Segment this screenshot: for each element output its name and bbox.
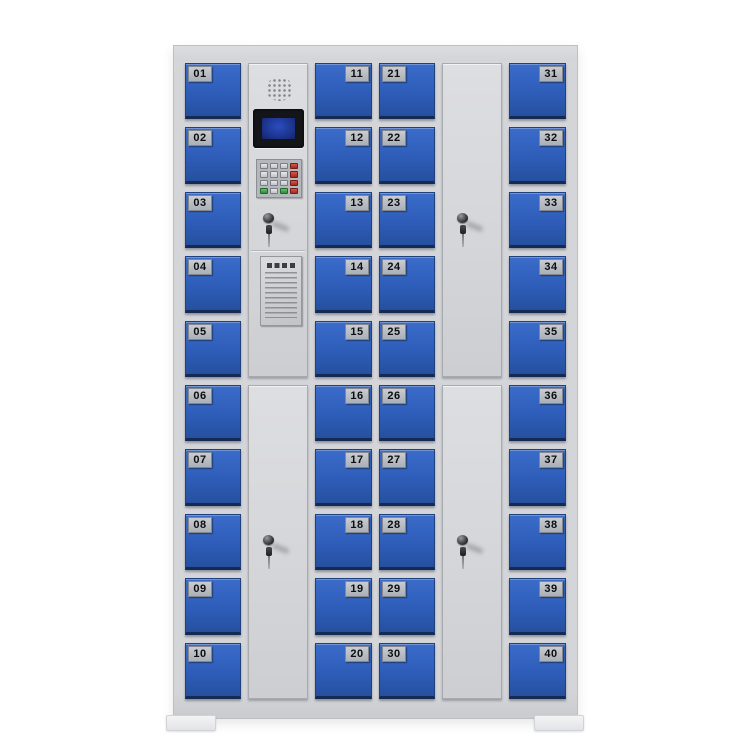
- key-shaft: [268, 556, 271, 569]
- locker-door-30: 30: [379, 643, 435, 699]
- locker-door-07: 07: [185, 449, 241, 505]
- keypad-key: [280, 180, 288, 186]
- locker-number-plate: 18: [345, 517, 369, 533]
- photo-background: 01 02 03 04 05 06 07 08 09 10: [0, 0, 750, 750]
- keypad-key-red: [290, 163, 298, 169]
- lock-knob: [457, 535, 468, 545]
- locker-door-03: 03: [185, 192, 241, 248]
- locker-door-13: 13: [315, 192, 372, 248]
- locker-door-02: 02: [185, 127, 241, 183]
- locker-column-1: 01 02 03 04 05 06 07 08 09 10: [185, 63, 241, 699]
- locker-number-plate: 28: [382, 517, 406, 533]
- locker-number-plate: 17: [345, 452, 369, 468]
- locker-door-14: 14: [315, 256, 372, 312]
- key-head: [460, 547, 466, 556]
- key-lock: [259, 535, 287, 575]
- locker-number-plate: 06: [188, 388, 212, 404]
- locker-door-27: 27: [379, 449, 435, 505]
- locker-number-plate: 02: [188, 130, 212, 146]
- locker-door-34: 34: [509, 256, 566, 312]
- key-head: [460, 225, 466, 234]
- locker-door-12: 12: [315, 127, 372, 183]
- locker-number-plate: 30: [382, 646, 406, 662]
- keypad-key: [260, 171, 268, 177]
- locker-number-plate: 20: [345, 646, 369, 662]
- locker-door-05: 05: [185, 321, 241, 377]
- keypad-key-green: [260, 188, 268, 194]
- locker-number-plate: 14: [345, 259, 369, 275]
- speaker-grille: [266, 77, 293, 101]
- keypad-key-red: [290, 171, 298, 177]
- keypad-key: [280, 171, 288, 177]
- keypad-key: [270, 180, 278, 186]
- keypad-key-red: [290, 180, 298, 186]
- locker-number-plate: 13: [345, 195, 369, 211]
- key-lock: [259, 213, 287, 253]
- locker-door-04: 04: [185, 256, 241, 312]
- locker-door-35: 35: [509, 321, 566, 377]
- locker-door-16: 16: [315, 385, 372, 441]
- instruction-plate: [260, 256, 302, 326]
- lcd-screen: [261, 117, 296, 140]
- key-head: [266, 547, 272, 556]
- locker-door-19: 19: [315, 578, 372, 634]
- locker-number-plate: 39: [539, 581, 563, 597]
- locker-column-4: 21 22 23 24 25 26 27 28 29 30: [379, 63, 435, 699]
- locker-number-plate: 07: [188, 452, 212, 468]
- locker-door-26: 26: [379, 385, 435, 441]
- lock-knob: [263, 213, 274, 223]
- instruction-text-greeked: [265, 272, 297, 318]
- locker-number-plate: 32: [539, 130, 563, 146]
- locker-door-08: 08: [185, 514, 241, 570]
- locker-door-22: 22: [379, 127, 435, 183]
- locker-door-21: 21: [379, 63, 435, 119]
- locker-number-plate: 40: [539, 646, 563, 662]
- locker-door-01: 01: [185, 63, 241, 119]
- locker-door-33: 33: [509, 192, 566, 248]
- locker-door-36: 36: [509, 385, 566, 441]
- keypad-key: [270, 171, 278, 177]
- keypad-key: [260, 180, 268, 186]
- locker-number-plate: 37: [539, 452, 563, 468]
- locker-door-40: 40: [509, 643, 566, 699]
- keypad-key-red: [290, 188, 298, 194]
- locker-number-plate: 22: [382, 130, 406, 146]
- locker-door-15: 15: [315, 321, 372, 377]
- locker-door-25: 25: [379, 321, 435, 377]
- locker-number-plate: 21: [382, 66, 406, 82]
- locker-door-31: 31: [509, 63, 566, 119]
- key-shaft: [462, 556, 465, 569]
- blank-door-top: [442, 63, 502, 377]
- lcd-display: [253, 109, 304, 148]
- key-head: [266, 225, 272, 234]
- key-lock: [453, 213, 481, 253]
- locker-number-plate: 34: [539, 259, 563, 275]
- locker-number-plate: 25: [382, 324, 406, 340]
- keypad-key-green: [280, 188, 288, 194]
- locker-door-38: 38: [509, 514, 566, 570]
- locker-number-plate: 36: [539, 388, 563, 404]
- locker-door-37: 37: [509, 449, 566, 505]
- locker-number-plate: 03: [188, 195, 212, 211]
- locker-door-06: 06: [185, 385, 241, 441]
- instruction-title-greeked: [267, 263, 295, 268]
- keypad: [256, 159, 302, 198]
- panel-seam: [251, 250, 305, 251]
- locker-column-6: 31 32 33 34 35 36 37 38 39 40: [509, 63, 566, 699]
- locker-number-plate: 26: [382, 388, 406, 404]
- locker-number-plate: 12: [345, 130, 369, 146]
- keypad-key: [270, 188, 278, 194]
- locker-number-plate: 16: [345, 388, 369, 404]
- locker-door-29: 29: [379, 578, 435, 634]
- locker-number-plate: 19: [345, 581, 369, 597]
- key-lock: [453, 535, 481, 575]
- locker-door-11: 11: [315, 63, 372, 119]
- key-shaft: [462, 234, 465, 247]
- keypad-key: [280, 163, 288, 169]
- locker-door-18: 18: [315, 514, 372, 570]
- lock-knob: [457, 213, 468, 223]
- keypad-key: [260, 163, 268, 169]
- locker-number-plate: 29: [382, 581, 406, 597]
- blank-door-bottom: [442, 385, 502, 699]
- locker-door-32: 32: [509, 127, 566, 183]
- locker-number-plate: 10: [188, 646, 212, 662]
- blank-door-control-bottom: [248, 385, 308, 699]
- locker-number-plate: 23: [382, 195, 406, 211]
- keypad-key: [270, 163, 278, 169]
- cabinet-door-area: 01 02 03 04 05 06 07 08 09 10: [185, 63, 566, 699]
- service-door-column: [442, 63, 502, 699]
- locker-door-20: 20: [315, 643, 372, 699]
- key-shaft: [268, 234, 271, 247]
- locker-door-09: 09: [185, 578, 241, 634]
- locker-column-3: 11 12 13 14 15 16 17 18 19 20: [315, 63, 372, 699]
- locker-door-39: 39: [509, 578, 566, 634]
- lock-knob: [263, 535, 274, 545]
- locker-number-plate: 27: [382, 452, 406, 468]
- locker-number-plate: 35: [539, 324, 563, 340]
- locker-number-plate: 33: [539, 195, 563, 211]
- locker-number-plate: 31: [539, 66, 563, 82]
- locker-number-plate: 05: [188, 324, 212, 340]
- locker-door-10: 10: [185, 643, 241, 699]
- locker-number-plate: 09: [188, 581, 212, 597]
- locker-cabinet: 01 02 03 04 05 06 07 08 09 10: [173, 45, 578, 719]
- locker-number-plate: 24: [382, 259, 406, 275]
- locker-number-plate: 08: [188, 517, 212, 533]
- locker-number-plate: 38: [539, 517, 563, 533]
- control-column: [248, 63, 308, 699]
- locker-door-17: 17: [315, 449, 372, 505]
- control-panel: [248, 63, 308, 377]
- cabinet-foot-left: [166, 715, 216, 731]
- locker-number-plate: 15: [345, 324, 369, 340]
- locker-door-28: 28: [379, 514, 435, 570]
- locker-door-23: 23: [379, 192, 435, 248]
- cabinet-foot-right: [534, 715, 584, 731]
- locker-door-24: 24: [379, 256, 435, 312]
- locker-number-plate: 04: [188, 259, 212, 275]
- locker-number-plate: 01: [188, 66, 212, 82]
- locker-number-plate: 11: [345, 66, 369, 82]
